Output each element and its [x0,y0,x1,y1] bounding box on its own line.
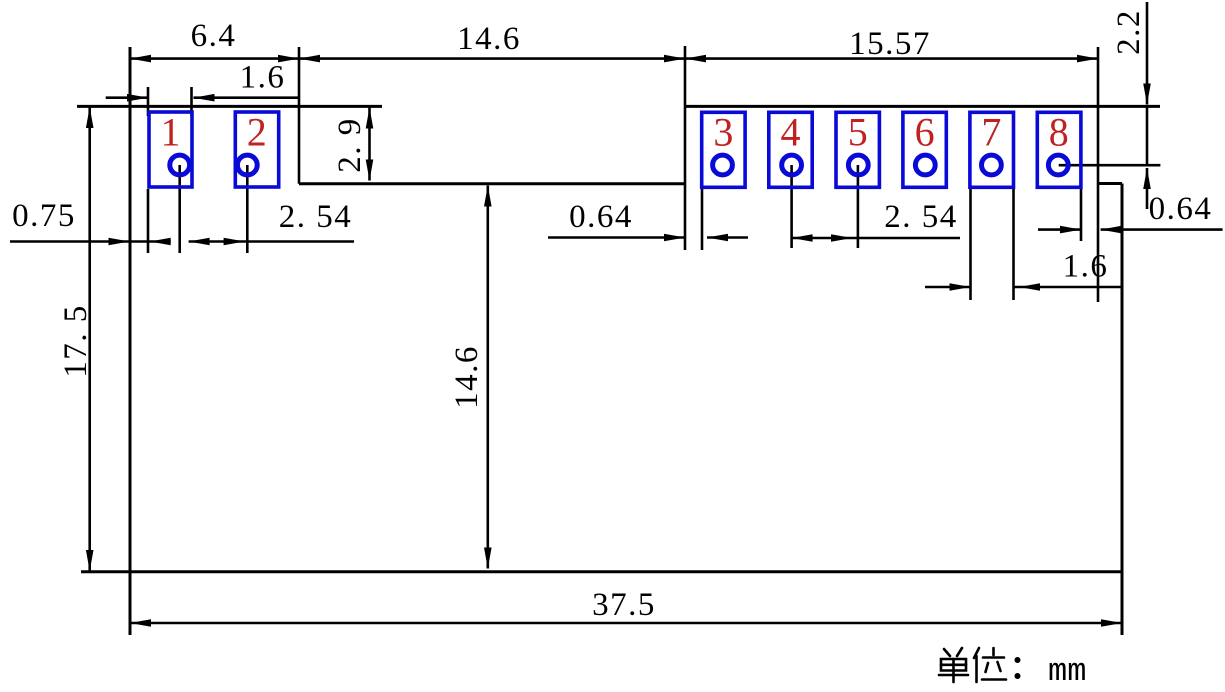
svg-text:4: 4 [781,110,801,155]
svg-text:2.2: 2.2 [1111,9,1147,55]
svg-text:0.64: 0.64 [569,199,633,235]
svg-text:6: 6 [915,110,935,155]
svg-text:6.4: 6.4 [191,18,237,54]
svg-text:15.57: 15.57 [849,26,931,62]
svg-text:1.6: 1.6 [1063,249,1109,285]
svg-text:2: 2 [247,110,267,155]
svg-text:1.6: 1.6 [240,60,286,96]
svg-text:8: 8 [1049,110,1069,155]
svg-text:14.6: 14.6 [449,345,485,409]
svg-text:2. 54: 2. 54 [279,199,353,235]
svg-text:mm: mm [1048,653,1086,690]
svg-text:0.75: 0.75 [12,198,76,234]
svg-text:17. 5: 17. 5 [58,304,94,378]
svg-text:3: 3 [713,110,733,155]
svg-text:5: 5 [848,110,868,155]
svg-text:37.5: 37.5 [592,587,656,623]
svg-text:7: 7 [981,110,1001,155]
svg-text:2. 9: 2. 9 [332,117,368,173]
svg-text:1: 1 [161,110,181,155]
svg-text:2. 54: 2. 54 [884,199,958,235]
svg-text:14.6: 14.6 [457,21,521,57]
svg-text:0.64: 0.64 [1149,191,1213,227]
